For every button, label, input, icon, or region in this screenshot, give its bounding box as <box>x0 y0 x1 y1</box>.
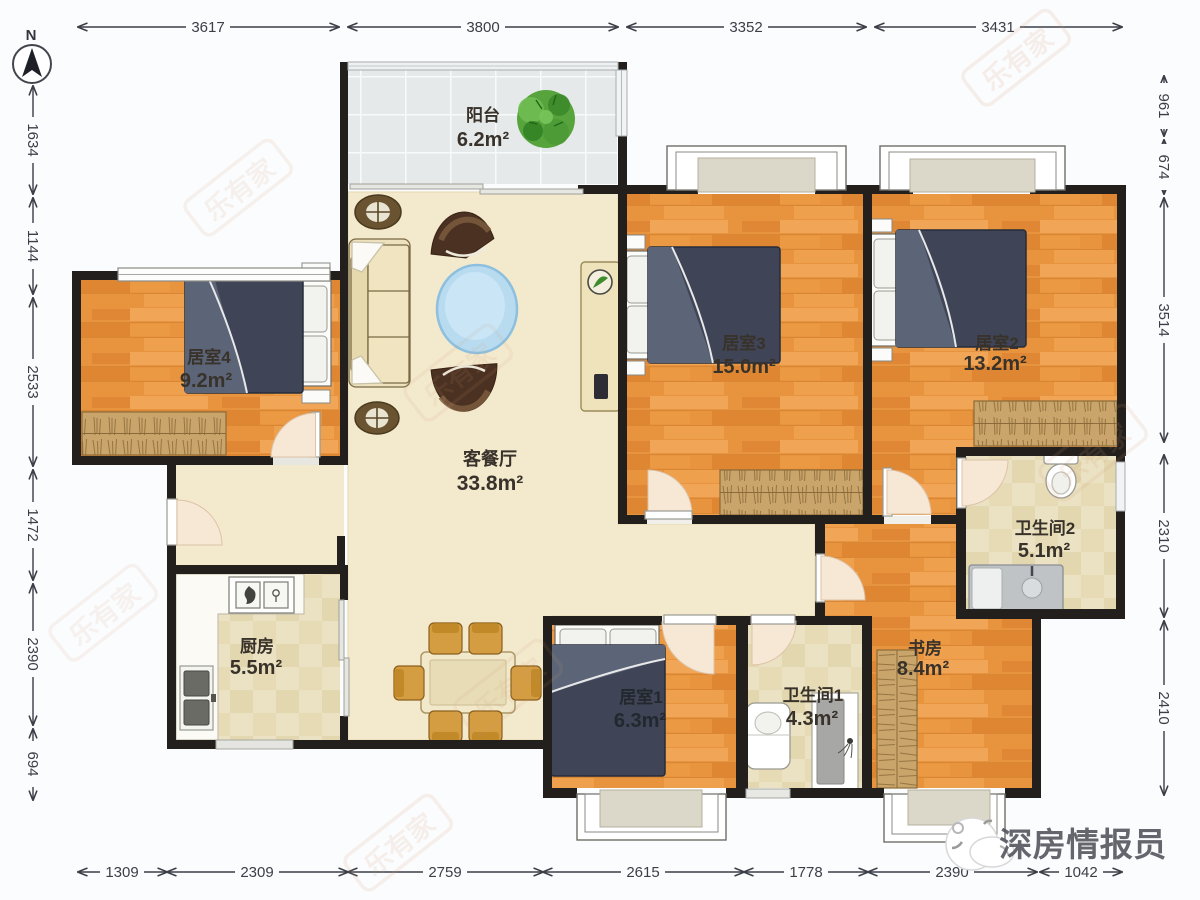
svg-text:2533: 2533 <box>24 365 41 398</box>
svg-text:居室1: 居室1 <box>619 687 662 707</box>
svg-text:6.2m²: 6.2m² <box>457 129 510 151</box>
svg-text:5.1m²: 5.1m² <box>1018 540 1071 562</box>
svg-text:2615: 2615 <box>626 864 659 881</box>
svg-text:1472: 1472 <box>24 508 41 541</box>
svg-text:书房: 书房 <box>908 638 942 658</box>
svg-text:2759: 2759 <box>428 864 461 881</box>
svg-text:深房情报员: 深房情报员 <box>999 826 1167 863</box>
svg-text:客餐厅: 客餐厅 <box>463 448 517 469</box>
svg-text:3431: 3431 <box>981 19 1014 36</box>
svg-text:居室4: 居室4 <box>187 347 231 367</box>
svg-text:4.3m²: 4.3m² <box>786 708 839 730</box>
svg-text:3352: 3352 <box>729 19 762 36</box>
svg-text:厨房: 厨房 <box>240 636 274 656</box>
svg-text:33.8m²: 33.8m² <box>457 472 524 495</box>
svg-text:3800: 3800 <box>466 19 499 36</box>
svg-text:6.3m²: 6.3m² <box>614 710 667 732</box>
svg-text:1144: 1144 <box>24 230 41 262</box>
svg-text:13.2m²: 13.2m² <box>963 353 1027 375</box>
svg-text:3514: 3514 <box>1155 303 1172 336</box>
svg-text:2390: 2390 <box>24 637 41 670</box>
svg-text:2310: 2310 <box>1155 519 1172 552</box>
svg-text:15.0m²: 15.0m² <box>712 356 776 378</box>
svg-text:674: 674 <box>1155 154 1172 179</box>
svg-text:2309: 2309 <box>240 864 273 881</box>
svg-text:N: N <box>26 27 37 44</box>
svg-text:1042: 1042 <box>1064 864 1097 881</box>
svg-text:3617: 3617 <box>191 19 224 36</box>
svg-text:2410: 2410 <box>1155 691 1172 724</box>
svg-text:卫生间1: 卫生间1 <box>783 685 843 705</box>
svg-text:961: 961 <box>1155 93 1172 118</box>
svg-text:694: 694 <box>24 751 41 776</box>
svg-text:1778: 1778 <box>789 864 822 881</box>
svg-text:9.2m²: 9.2m² <box>180 370 233 392</box>
svg-text:居室2: 居室2 <box>975 333 1018 353</box>
svg-text:1309: 1309 <box>105 864 138 881</box>
svg-text:1634: 1634 <box>24 123 41 156</box>
svg-text:8.4m²: 8.4m² <box>897 658 950 680</box>
svg-text:阳台: 阳台 <box>466 105 500 125</box>
svg-text:5.5m²: 5.5m² <box>230 657 283 679</box>
svg-text:居室3: 居室3 <box>722 333 765 353</box>
svg-text:卫生间2: 卫生间2 <box>1015 518 1075 538</box>
